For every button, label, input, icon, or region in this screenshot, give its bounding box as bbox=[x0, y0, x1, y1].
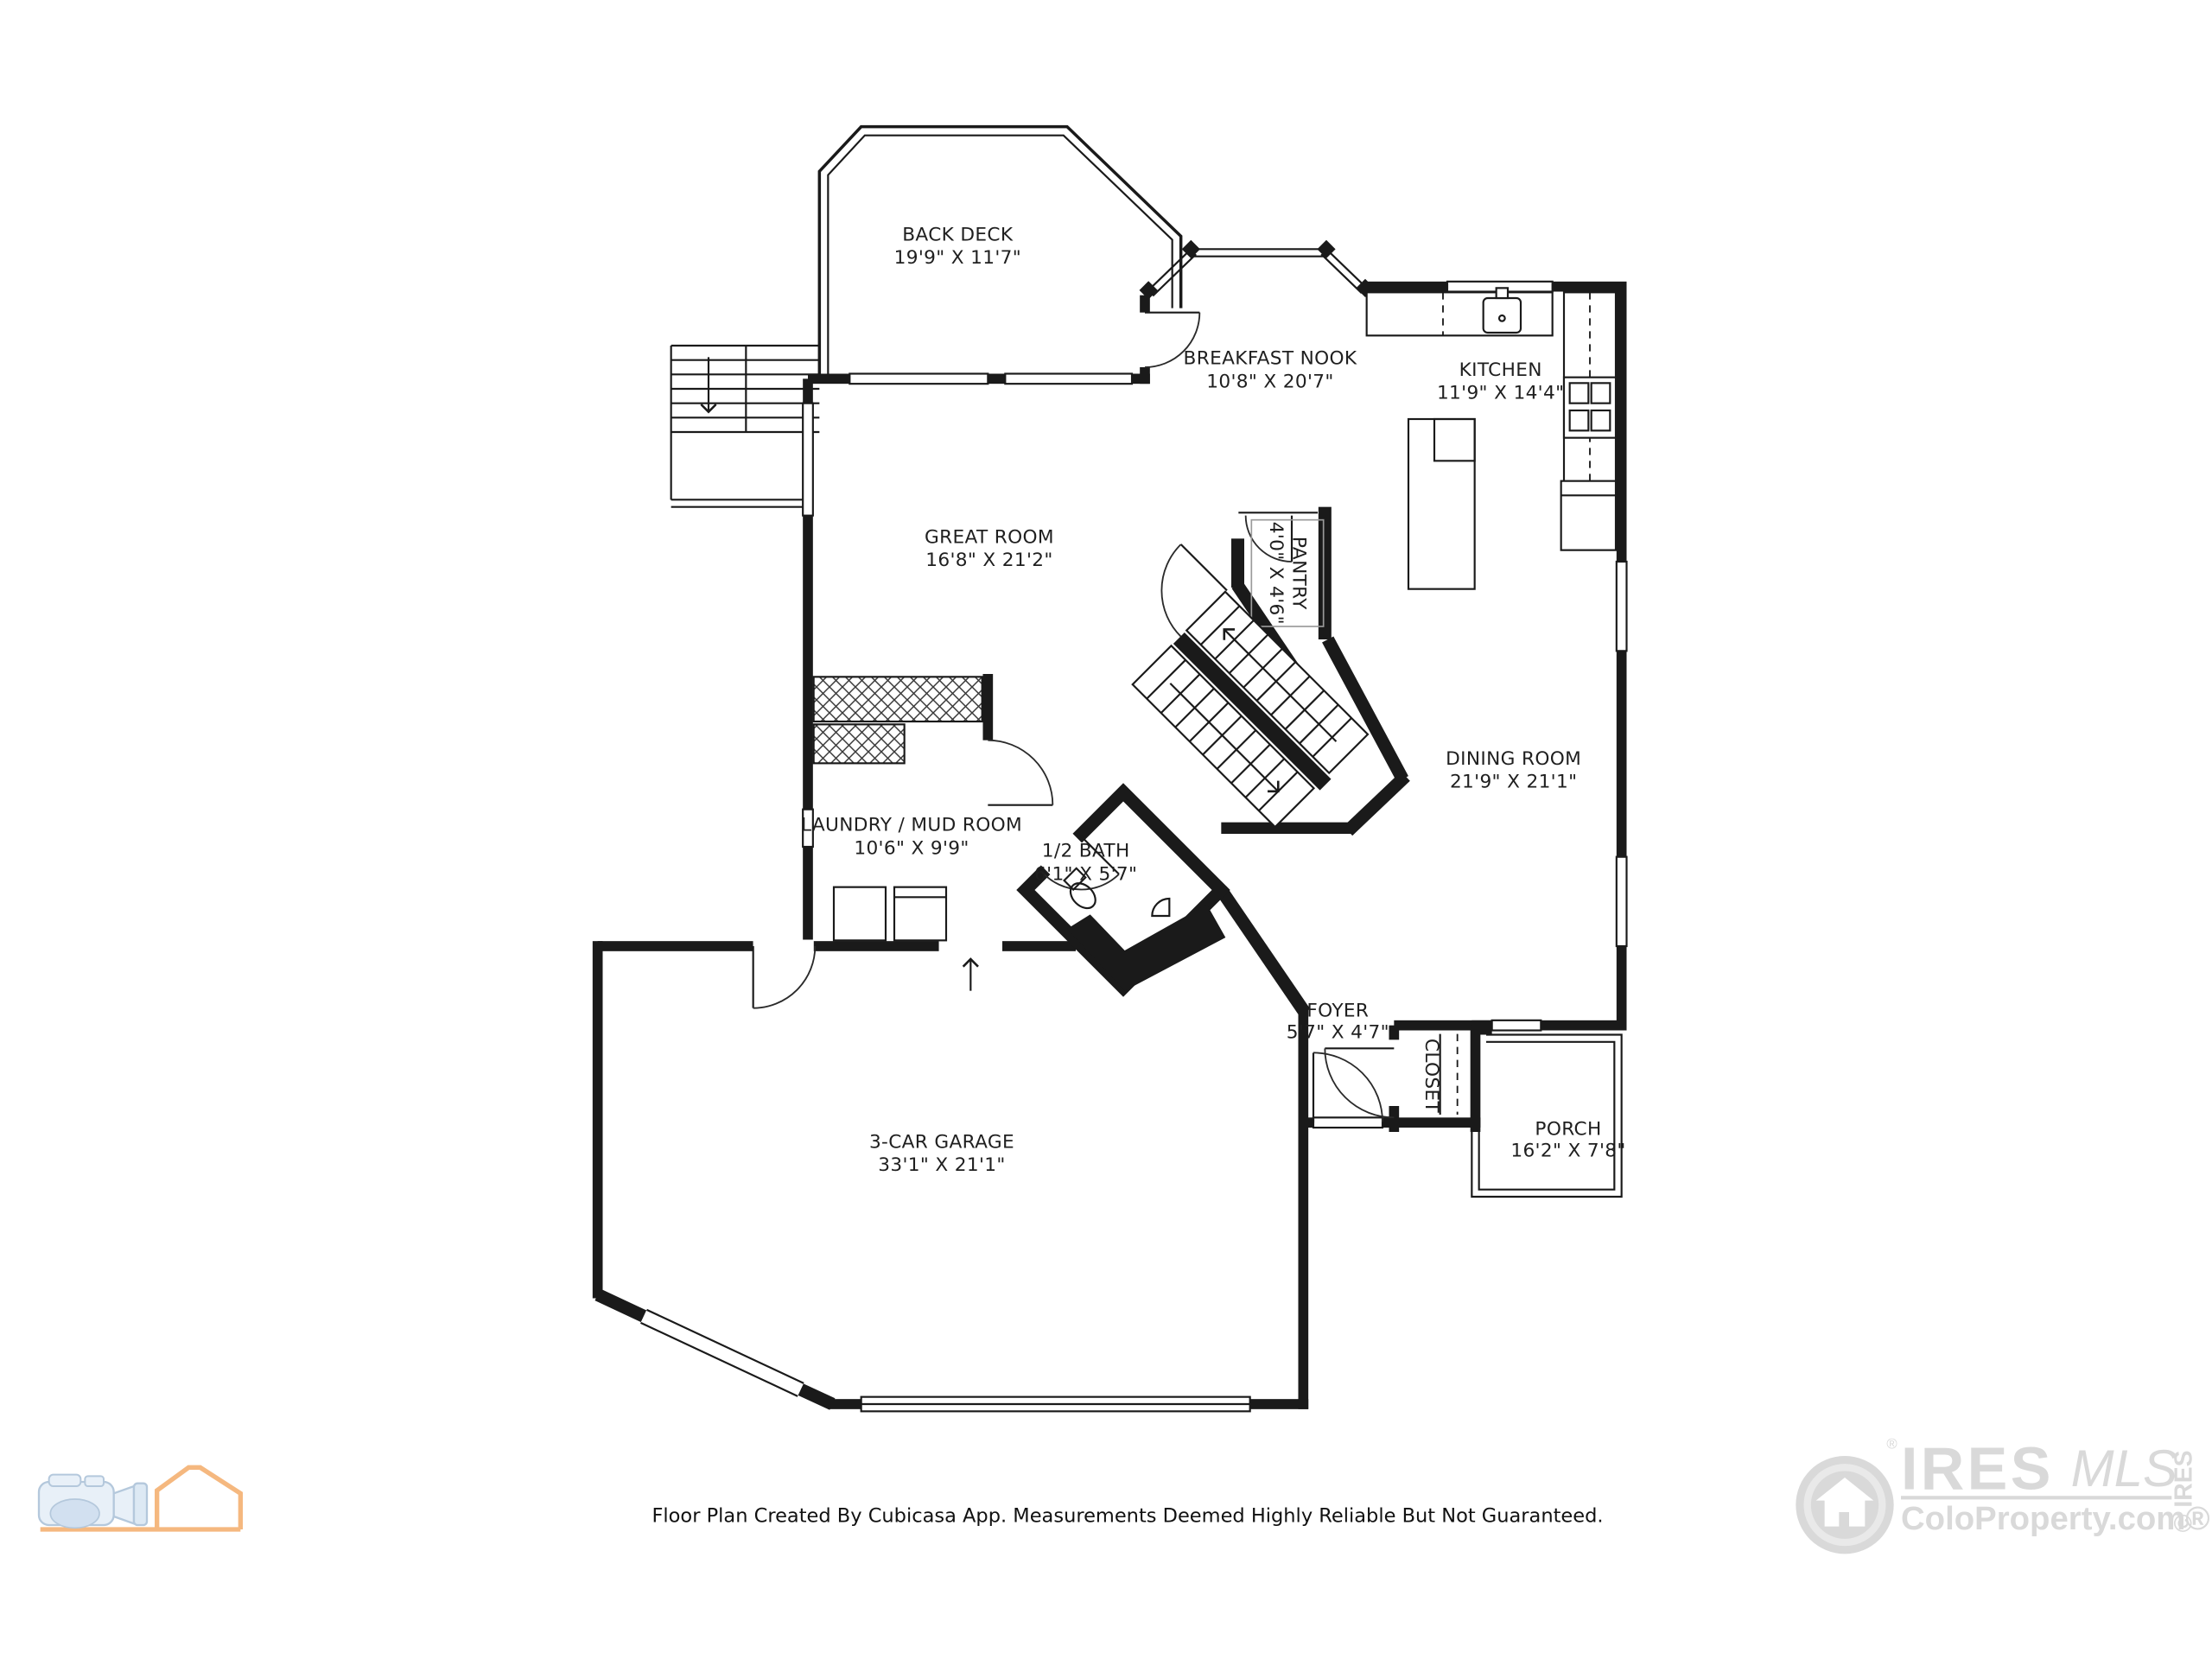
laundry-door bbox=[988, 741, 1052, 805]
room-dims-back-deck: 19'9" X 11'7" bbox=[894, 247, 1021, 269]
kitchen-island bbox=[1408, 419, 1475, 589]
room-dims-half-bath: 6'1" X 5'7" bbox=[1034, 863, 1137, 885]
room-dims-porch: 16'2" X 7'8" bbox=[1510, 1140, 1625, 1161]
room-dims-kitchen: 11'9" X 14'4" bbox=[1437, 383, 1564, 404]
window bbox=[1005, 374, 1132, 385]
closet-hatched bbox=[814, 677, 982, 721]
room-dims-great-room: 16'8" X 21'2" bbox=[925, 550, 1052, 571]
window bbox=[803, 404, 813, 516]
garage-step-opening bbox=[939, 938, 1002, 991]
floor-plan-svg: BACK DECK 19'9" X 11'7" BREAKFAST NOOK 1… bbox=[0, 0, 2212, 1659]
room-label-great-room: GREAT ROOM bbox=[925, 526, 1054, 548]
bay-windows bbox=[1140, 240, 1375, 300]
room-label-porch: PORCH bbox=[1535, 1118, 1601, 1140]
garage-door-main bbox=[861, 1397, 1250, 1412]
room-dims-laundry: 10'6" X 9'9" bbox=[854, 837, 969, 859]
room-label-pantry: PANTRY bbox=[1288, 537, 1310, 610]
closet-door bbox=[1325, 1048, 1394, 1117]
refrigerator-icon bbox=[1561, 481, 1616, 550]
window bbox=[1492, 1020, 1541, 1031]
room-label-garage: 3-CAR GARAGE bbox=[869, 1131, 1014, 1153]
garage-entry-door bbox=[753, 940, 816, 1008]
porch-outline bbox=[1471, 1020, 1621, 1197]
closet-hatched-small bbox=[814, 724, 905, 763]
room-label-half-bath: 1/2 BATH bbox=[1042, 841, 1130, 862]
room-label-kitchen: KITCHEN bbox=[1459, 359, 1542, 381]
ires-vertical-text: © IRES bbox=[2171, 1450, 2198, 1532]
stove-icon bbox=[1564, 378, 1616, 438]
washer-icon bbox=[834, 887, 886, 941]
ires-logo: ® IRES MLS ColoProperty.com® © IRES bbox=[1796, 1434, 2209, 1554]
ires-brand: IRES bbox=[1901, 1434, 2054, 1502]
room-dims-pantry: 4'0" X 4'6" bbox=[1265, 522, 1287, 625]
ires-mls-script: MLS bbox=[2071, 1440, 2177, 1497]
room-label-breakfast-nook: BREAKFAST NOOK bbox=[1184, 348, 1357, 370]
room-label-laundry: LAUNDRY / MUD ROOM bbox=[801, 815, 1022, 836]
ires-registered: ® bbox=[1886, 1436, 1897, 1452]
deck-stairs bbox=[671, 346, 820, 507]
garage-door-diagonal bbox=[641, 1310, 804, 1396]
room-dims-dining: 21'9" X 21'1" bbox=[1450, 772, 1577, 793]
footer-disclaimer: Floor Plan Created By Cubicasa App. Meas… bbox=[652, 1505, 1603, 1528]
room-label-foyer: FOYER bbox=[1306, 1001, 1369, 1022]
window bbox=[1617, 562, 1627, 651]
window bbox=[849, 374, 988, 385]
kitchen-fixtures bbox=[1367, 288, 1616, 588]
window bbox=[1617, 857, 1627, 946]
faucet-icon bbox=[1497, 288, 1508, 298]
dryer-icon bbox=[894, 887, 946, 941]
cubicasa-logo bbox=[39, 1467, 240, 1529]
room-label-back-deck: BACK DECK bbox=[902, 224, 1014, 245]
room-dims-foyer: 5'7" X 4'7" bbox=[1287, 1022, 1389, 1044]
laundry-room bbox=[814, 674, 1053, 940]
room-dims-breakfast-nook: 10'8" X 20'7" bbox=[1206, 371, 1333, 392]
foyer-diagonal-wall bbox=[1221, 890, 1305, 1013]
front-door bbox=[1313, 1052, 1382, 1128]
floor-plan-page: BACK DECK 19'9" X 11'7" BREAKFAST NOOK 1… bbox=[0, 0, 2212, 1659]
kitchen-counter-top bbox=[1367, 292, 1553, 335]
camera-icon bbox=[39, 1475, 147, 1529]
room-label-dining: DINING ROOM bbox=[1446, 748, 1581, 770]
room-dims-garage: 33'1" X 21'1" bbox=[878, 1154, 1005, 1176]
ires-site: ColoProperty.com® bbox=[1901, 1500, 2210, 1537]
room-label-closet: CLOSET bbox=[1421, 1039, 1442, 1114]
